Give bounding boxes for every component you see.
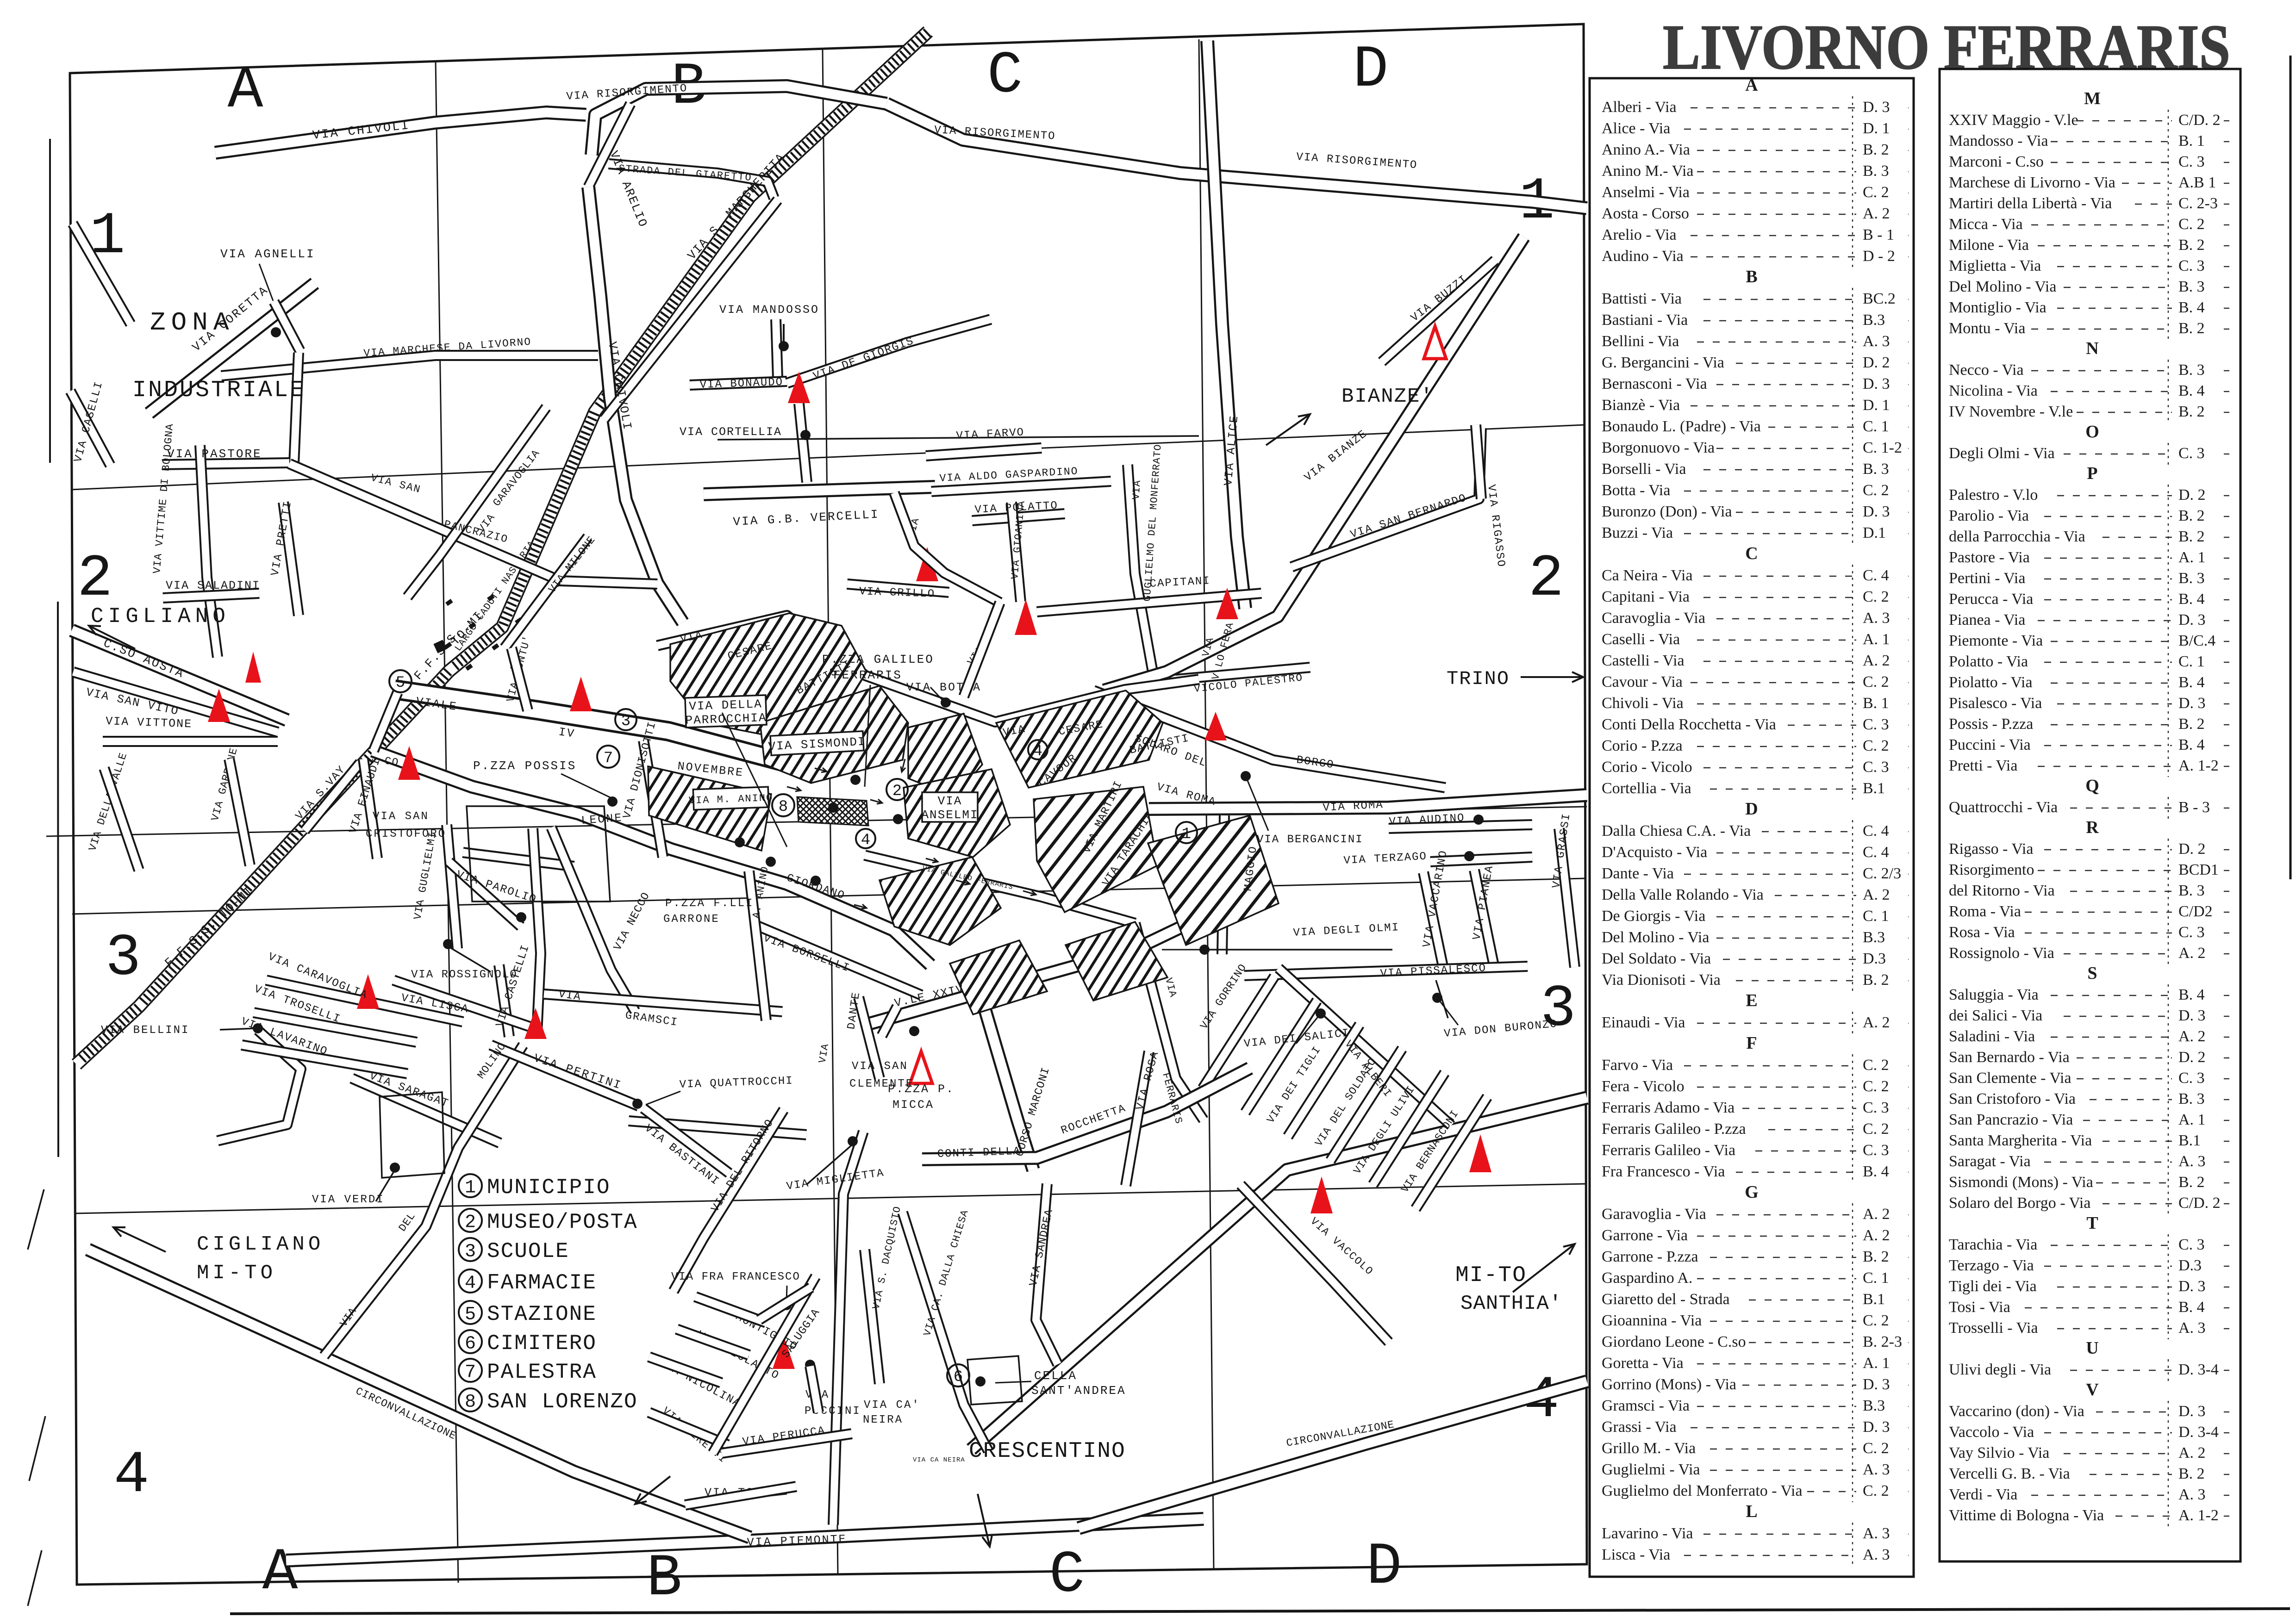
svg-text:Grassi - Via: Grassi - Via bbox=[1602, 1418, 1677, 1436]
svg-text:Del Molino - Via: Del Molino - Via bbox=[1602, 929, 1709, 946]
svg-text:D. 2: D. 2 bbox=[2178, 1049, 2206, 1066]
svg-text:A. 3: A. 3 bbox=[2178, 1486, 2206, 1503]
svg-text:Garavoglia - Via: Garavoglia - Via bbox=[1602, 1206, 1706, 1223]
svg-text:PARROCCHIA: PARROCCHIA bbox=[685, 711, 767, 728]
svg-text:VIA SAN: VIA SAN bbox=[373, 810, 429, 823]
svg-text:C. 2: C. 2 bbox=[1863, 1312, 1889, 1329]
svg-text:A. 2: A. 2 bbox=[1863, 1227, 1890, 1244]
svg-text:B. 2: B. 2 bbox=[1863, 141, 1889, 158]
svg-text:M: M bbox=[2084, 89, 2101, 108]
svg-text:D. 3: D. 3 bbox=[2178, 611, 2206, 628]
svg-text:Aosta - Corso: Aosta - Corso bbox=[1602, 205, 1689, 222]
svg-text:Chivoli - Via: Chivoli - Via bbox=[1602, 695, 1684, 712]
svg-text:Trosselli - Via: Trosselli - Via bbox=[1949, 1319, 2038, 1337]
svg-text:Solaro del Borgo - Via: Solaro del Borgo - Via bbox=[1949, 1194, 2090, 1212]
svg-text:C. 2: C. 2 bbox=[1863, 1482, 1889, 1499]
svg-text:Santa Margherita - Via: Santa Margherita - Via bbox=[1949, 1132, 2092, 1149]
svg-text:Grillo M. - Via: Grillo M. - Via bbox=[1602, 1440, 1696, 1457]
svg-text:IV Novembre - V.le: IV Novembre - V.le bbox=[1949, 403, 2073, 420]
svg-text:Dante - Via: Dante - Via bbox=[1602, 865, 1674, 882]
svg-text:B. 2: B. 2 bbox=[1863, 1248, 1889, 1265]
svg-text:D. 3-4: D. 3-4 bbox=[2178, 1361, 2219, 1378]
svg-text:D: D bbox=[1366, 1534, 1402, 1601]
svg-text:C. 2: C. 2 bbox=[1863, 673, 1889, 690]
svg-text:Lavarino - Via: Lavarino - Via bbox=[1602, 1525, 1693, 1542]
svg-text:C. 3: C. 3 bbox=[2178, 445, 2205, 462]
svg-text:B. 4: B. 4 bbox=[2178, 674, 2205, 691]
svg-text:B. 4: B. 4 bbox=[2178, 736, 2205, 753]
svg-text:MI-TO: MI-TO bbox=[197, 1262, 276, 1285]
svg-text:B. 2: B. 2 bbox=[2178, 1174, 2205, 1191]
svg-text:Terzago - Via: Terzago - Via bbox=[1949, 1257, 2034, 1274]
svg-text:B.1: B.1 bbox=[2178, 1132, 2201, 1149]
svg-text:B. 4: B. 4 bbox=[1863, 1163, 1889, 1180]
svg-text:BCD1: BCD1 bbox=[2178, 861, 2219, 878]
svg-text:A. 1: A. 1 bbox=[2178, 549, 2206, 566]
svg-text:Alberi - Via: Alberi - Via bbox=[1602, 99, 1677, 116]
svg-text:Fera - Vicolo: Fera - Vicolo bbox=[1602, 1078, 1685, 1095]
svg-text:Ferraris Adamo - Via: Ferraris Adamo - Via bbox=[1602, 1099, 1734, 1116]
svg-text:Corio - Vicolo: Corio - Vicolo bbox=[1602, 759, 1692, 776]
svg-text:Pisalesco - Via: Pisalesco - Via bbox=[1949, 695, 2042, 712]
svg-text:Vittime di Bologna - Via: Vittime di Bologna - Via bbox=[1949, 1507, 2104, 1524]
svg-text:D'Acquisto - Via: D'Acquisto - Via bbox=[1602, 844, 1707, 861]
svg-text:C. 3: C. 3 bbox=[2178, 257, 2205, 274]
svg-text:Giaretto del - Strada: Giaretto del - Strada bbox=[1602, 1291, 1730, 1308]
svg-text:Bianzè - Via: Bianzè - Via bbox=[1602, 397, 1680, 414]
svg-text:VIA: VIA bbox=[1130, 479, 1143, 500]
svg-text:Guglielmi - Via: Guglielmi - Via bbox=[1602, 1461, 1700, 1478]
svg-text:Pastore - Via: Pastore - Via bbox=[1949, 549, 2030, 566]
svg-text:A. 3: A. 3 bbox=[1863, 1461, 1890, 1478]
svg-text:V: V bbox=[2086, 1380, 2099, 1399]
svg-text:A: A bbox=[262, 1539, 298, 1606]
svg-text:B. 2: B. 2 bbox=[2178, 236, 2205, 254]
svg-text:Gorrino (Mons) - Via: Gorrino (Mons) - Via bbox=[1602, 1376, 1736, 1393]
svg-text:C: C bbox=[1745, 544, 1758, 563]
svg-text:B. 2: B. 2 bbox=[2178, 528, 2205, 545]
svg-text:A. 1: A. 1 bbox=[1863, 1355, 1890, 1372]
svg-text:Bellini - Via: Bellini - Via bbox=[1602, 333, 1679, 350]
svg-text:Sismondi (Mons) - Via: Sismondi (Mons) - Via bbox=[1949, 1174, 2093, 1191]
svg-text:C. 1-2: C. 1-2 bbox=[1863, 439, 1902, 456]
svg-text:Giordano Leone - C.so: Giordano Leone - C.so bbox=[1602, 1333, 1746, 1350]
svg-text:C. 1: C. 1 bbox=[1863, 908, 1889, 925]
svg-text:INDUSTRIALE: INDUSTRIALE bbox=[132, 377, 306, 404]
svg-text:E: E bbox=[1746, 991, 1757, 1010]
svg-text:Piemonte - Via: Piemonte - Via bbox=[1949, 632, 2043, 649]
svg-text:C. 3: C. 3 bbox=[2178, 1070, 2205, 1087]
svg-text:O: O bbox=[2085, 422, 2099, 442]
svg-text:VIA SAN: VIA SAN bbox=[852, 1060, 908, 1073]
svg-text:SAN LORENZO: SAN LORENZO bbox=[487, 1390, 638, 1414]
svg-text:C. 2-3: C. 2-3 bbox=[2178, 195, 2218, 212]
svg-text:Cavour - Via: Cavour - Via bbox=[1602, 673, 1683, 690]
svg-text:della Parrocchia - Via: della Parrocchia - Via bbox=[1949, 528, 2085, 545]
svg-text:Anselmi - Via: Anselmi - Via bbox=[1602, 184, 1690, 201]
svg-text:Alice - Via: Alice - Via bbox=[1602, 120, 1670, 137]
svg-text:Micca - Via: Micca - Via bbox=[1949, 216, 2023, 233]
svg-text:B. 4: B. 4 bbox=[2178, 382, 2205, 399]
svg-text:N: N bbox=[2086, 339, 2098, 358]
svg-text:C: C bbox=[987, 43, 1023, 110]
svg-text:D. 3: D. 3 bbox=[1863, 375, 1890, 392]
svg-text:D. 2: D. 2 bbox=[2178, 840, 2206, 858]
svg-text:del Ritorno - Via: del Ritorno - Via bbox=[1949, 882, 2055, 899]
svg-text:B: B bbox=[1746, 267, 1757, 286]
svg-text:A. 2: A. 2 bbox=[1863, 886, 1890, 903]
svg-text:B. 3: B. 3 bbox=[1863, 162, 1889, 180]
svg-text:VIA BELLINI: VIA BELLINI bbox=[101, 1024, 189, 1037]
svg-text:B. 2: B. 2 bbox=[1863, 971, 1889, 989]
svg-text:Capitani - Via: Capitani - Via bbox=[1602, 588, 1690, 605]
svg-text:C. 3: C. 3 bbox=[1863, 716, 1889, 733]
svg-text:SANTHIA': SANTHIA' bbox=[1460, 1292, 1562, 1315]
svg-text:B.3: B.3 bbox=[1863, 929, 1885, 946]
svg-text:Battisti - Via: Battisti - Via bbox=[1602, 290, 1682, 307]
svg-text:Fra Francesco - Via: Fra Francesco - Via bbox=[1602, 1163, 1725, 1180]
svg-text:Della Valle Rolando - Via: Della Valle Rolando - Via bbox=[1602, 886, 1764, 903]
svg-text:Buzzi - Via: Buzzi - Via bbox=[1602, 524, 1673, 541]
svg-text:CO: CO bbox=[384, 755, 400, 769]
svg-text:B. 4: B. 4 bbox=[2178, 986, 2205, 1003]
svg-text:CRESCENTINO: CRESCENTINO bbox=[969, 1439, 1126, 1464]
svg-text:Corio - P.zza: Corio - P.zza bbox=[1602, 737, 1683, 754]
svg-text:8: 8 bbox=[779, 798, 788, 816]
svg-text:Perucca - Via: Perucca - Via bbox=[1949, 591, 2033, 608]
svg-text:Degli Olmi - Via: Degli Olmi - Via bbox=[1949, 445, 2055, 462]
svg-text:CELLA: CELLA bbox=[1034, 1369, 1077, 1383]
svg-text:Vaccolo - Via: Vaccolo - Via bbox=[1949, 1424, 2034, 1441]
svg-text:VIA SALADINI: VIA SALADINI bbox=[166, 579, 260, 592]
svg-text:Caravoglia - Via: Caravoglia - Via bbox=[1602, 609, 1705, 627]
svg-text:VIA CA NEIRA: VIA CA NEIRA bbox=[913, 1456, 965, 1464]
svg-text:B. 1: B. 1 bbox=[1863, 695, 1889, 712]
svg-text:C. 3: C. 3 bbox=[1863, 1142, 1889, 1159]
svg-text:PALESTRA: PALESTRA bbox=[487, 1360, 597, 1384]
svg-text:SCUOLE: SCUOLE bbox=[487, 1239, 569, 1263]
svg-text:Pertini - Via: Pertini - Via bbox=[1949, 570, 2025, 587]
svg-text:GARRONE: GARRONE bbox=[663, 913, 720, 926]
svg-text:Farvo - Via: Farvo - Via bbox=[1602, 1057, 1673, 1074]
svg-text:C. 2: C. 2 bbox=[1863, 1078, 1889, 1095]
svg-text:B. 2: B. 2 bbox=[2178, 715, 2205, 733]
svg-text:2: 2 bbox=[892, 783, 902, 800]
svg-text:C. 2: C. 2 bbox=[2178, 216, 2205, 233]
svg-text:R: R bbox=[2086, 818, 2099, 837]
svg-text:D. 3: D. 3 bbox=[1863, 99, 1890, 116]
svg-text:A. 3: A. 3 bbox=[1863, 1546, 1890, 1563]
svg-text:P.ZZA GALILEO: P.ZZA GALILEO bbox=[822, 653, 934, 666]
svg-text:C/D. 2: C/D. 2 bbox=[2178, 1194, 2221, 1212]
svg-text:A. 2: A. 2 bbox=[2178, 945, 2206, 962]
svg-text:VIA CORTELLIA: VIA CORTELLIA bbox=[680, 425, 782, 439]
svg-text:C. 1: C. 1 bbox=[2178, 653, 2205, 670]
svg-text:C. 2: C. 2 bbox=[1863, 1057, 1889, 1074]
svg-text:XXIV Maggio - V.le: XXIV Maggio - V.le bbox=[1949, 112, 2078, 129]
svg-text:Vay Silvio - Via: Vay Silvio - Via bbox=[1949, 1444, 2049, 1461]
svg-text:6: 6 bbox=[954, 1368, 963, 1386]
svg-text:B. 3: B. 3 bbox=[2178, 278, 2205, 295]
svg-text:P.ZZA F.LLI: P.ZZA F.LLI bbox=[665, 897, 754, 910]
svg-text:A. 3: A. 3 bbox=[1863, 1525, 1890, 1542]
svg-text:Montu - Via: Montu - Via bbox=[1949, 320, 2025, 337]
svg-text:C. 4: C. 4 bbox=[1863, 822, 1889, 839]
svg-text:7: 7 bbox=[465, 1362, 476, 1383]
svg-text:Ulivi degli - Via: Ulivi degli - Via bbox=[1949, 1361, 2051, 1378]
svg-text:C. 4: C. 4 bbox=[1863, 567, 1889, 584]
svg-text:D. 3: D. 3 bbox=[2178, 1403, 2206, 1420]
svg-text:Nicolina - Via: Nicolina - Via bbox=[1949, 382, 2038, 399]
svg-text:MUNICIPIO: MUNICIPIO bbox=[487, 1175, 610, 1200]
svg-text:Ferraris Galileo - P.zza: Ferraris Galileo - P.zza bbox=[1602, 1120, 1746, 1138]
svg-text:Roma - Via: Roma - Via bbox=[1949, 903, 2021, 920]
svg-text:D - 2: D - 2 bbox=[1863, 248, 1895, 265]
svg-text:B.3: B.3 bbox=[1863, 1397, 1885, 1414]
svg-text:BC.2: BC.2 bbox=[1863, 290, 1896, 307]
svg-text:BIANZE': BIANZE' bbox=[1341, 385, 1434, 408]
svg-text:Conti Della Rocchetta - Via: Conti Della Rocchetta - Via bbox=[1602, 716, 1776, 733]
svg-text:B - 3: B - 3 bbox=[2178, 799, 2210, 816]
svg-text:B. 4: B. 4 bbox=[2178, 1299, 2205, 1316]
svg-text:C/D. 2: C/D. 2 bbox=[2178, 112, 2221, 129]
svg-text:Goretta - Via: Goretta - Via bbox=[1602, 1355, 1684, 1372]
svg-text:Bastiani - Via: Bastiani - Via bbox=[1602, 311, 1688, 329]
svg-text:B.3: B.3 bbox=[1863, 311, 1885, 329]
svg-text:B. 3: B. 3 bbox=[2178, 882, 2205, 899]
svg-text:Gaspardino A.: Gaspardino A. bbox=[1602, 1269, 1692, 1287]
svg-text:Tosi - Via: Tosi - Via bbox=[1949, 1299, 2010, 1316]
svg-text:Rossignolo - Via: Rossignolo - Via bbox=[1949, 945, 2054, 962]
svg-text:C. 2: C. 2 bbox=[1863, 482, 1889, 499]
svg-text:A: A bbox=[1745, 75, 1758, 95]
svg-text:Garrone - Via: Garrone - Via bbox=[1602, 1227, 1688, 1244]
svg-text:D. 1: D. 1 bbox=[1863, 120, 1890, 137]
svg-text:B.1: B.1 bbox=[1863, 780, 1885, 797]
svg-text:C. 1: C. 1 bbox=[1863, 1269, 1889, 1287]
svg-text:P.ZZA POSSIS: P.ZZA POSSIS bbox=[473, 759, 576, 773]
svg-text:C: C bbox=[1049, 1542, 1085, 1609]
svg-text:3: 3 bbox=[106, 925, 141, 992]
svg-text:D.3: D.3 bbox=[1863, 950, 1886, 967]
svg-text:Del Soldato - Via: Del Soldato - Via bbox=[1602, 950, 1711, 967]
svg-text:B. 4: B. 4 bbox=[2178, 591, 2205, 608]
svg-text:Marchese di Livorno - Via: Marchese di Livorno - Via bbox=[1949, 174, 2115, 191]
svg-text:A: A bbox=[228, 57, 263, 124]
svg-text:A. 1-2: A. 1-2 bbox=[2178, 757, 2219, 774]
svg-text:A. 2: A. 2 bbox=[2178, 1028, 2206, 1045]
svg-text:C. 3: C. 3 bbox=[2178, 1236, 2205, 1253]
svg-text:2: 2 bbox=[1529, 546, 1564, 613]
svg-text:C. 2/3: C. 2/3 bbox=[1863, 865, 1901, 882]
svg-text:C. 3: C. 3 bbox=[2178, 153, 2205, 170]
svg-text:C. 2: C. 2 bbox=[1863, 737, 1889, 754]
svg-text:Anino M.- Via: Anino M.- Via bbox=[1602, 162, 1694, 180]
svg-text:Vercelli G. B. - Via: Vercelli G. B. - Via bbox=[1949, 1465, 2070, 1482]
svg-text:A. 2: A. 2 bbox=[1863, 652, 1890, 669]
svg-text:Saladini - Via: Saladini - Via bbox=[1949, 1028, 2035, 1045]
svg-text:VIA AGNELLI: VIA AGNELLI bbox=[220, 247, 315, 261]
svg-text:De Giorgis - Via: De Giorgis - Via bbox=[1602, 908, 1705, 925]
svg-text:A. 2: A. 2 bbox=[1863, 1206, 1890, 1223]
svg-text:B. 2: B. 2 bbox=[2178, 403, 2205, 420]
svg-text:6: 6 bbox=[465, 1333, 476, 1354]
svg-text:VIA GRILLO: VIA GRILLO bbox=[859, 585, 936, 601]
svg-text:A. 3: A. 3 bbox=[1863, 333, 1890, 350]
svg-text:S: S bbox=[2087, 964, 2097, 983]
svg-text:Bernasconi - Via: Bernasconi - Via bbox=[1602, 375, 1707, 392]
svg-text:Quattrocchi - Via: Quattrocchi - Via bbox=[1949, 799, 2058, 816]
svg-text:FERRARIS: FERRARIS bbox=[833, 668, 902, 682]
svg-text:U: U bbox=[2086, 1338, 2098, 1358]
svg-text:Del Molino - Via: Del Molino - Via bbox=[1949, 278, 2056, 295]
svg-text:Cortellia - Via: Cortellia - Via bbox=[1602, 780, 1691, 797]
svg-text:C. 4: C. 4 bbox=[1863, 844, 1889, 861]
svg-text:A. 2: A. 2 bbox=[1863, 205, 1890, 222]
svg-text:B. 2: B. 2 bbox=[2178, 1465, 2205, 1482]
svg-text:D. 3: D. 3 bbox=[1863, 1376, 1890, 1393]
svg-text:4: 4 bbox=[114, 1442, 150, 1509]
svg-text:Pianea - Via: Pianea - Via bbox=[1949, 611, 2025, 628]
svg-text:Einaudi - Via: Einaudi - Via bbox=[1602, 1014, 1685, 1031]
svg-text:Rosa - Via: Rosa - Via bbox=[1949, 924, 2015, 941]
svg-text:IV: IV bbox=[558, 725, 576, 741]
svg-text:Castelli - Via: Castelli - Via bbox=[1602, 652, 1685, 669]
svg-text:Borselli - Via: Borselli - Via bbox=[1602, 460, 1686, 478]
svg-text:4: 4 bbox=[861, 832, 870, 849]
svg-text:Saragat - Via: Saragat - Via bbox=[1949, 1153, 2031, 1170]
svg-text:VIA ROSSIGNOLO: VIA ROSSIGNOLO bbox=[411, 969, 518, 981]
svg-text:B - 1: B - 1 bbox=[1863, 226, 1894, 243]
svg-text:TRINO: TRINO bbox=[1447, 668, 1510, 690]
svg-text:Piolatto - Via: Piolatto - Via bbox=[1949, 674, 2033, 691]
svg-text:Ferraris Galileo - Via: Ferraris Galileo - Via bbox=[1602, 1142, 1735, 1159]
svg-text:D. 3-4: D. 3-4 bbox=[2178, 1424, 2219, 1441]
svg-text:VIA: VIA bbox=[938, 794, 962, 808]
svg-text:ZONA: ZONA bbox=[150, 308, 234, 337]
svg-text:Milone - Via: Milone - Via bbox=[1949, 236, 2029, 254]
svg-text:D: D bbox=[1745, 799, 1758, 819]
svg-text:3: 3 bbox=[465, 1241, 476, 1262]
svg-text:Montiglio - Via: Montiglio - Via bbox=[1949, 299, 2046, 316]
svg-text:CIMITERO: CIMITERO bbox=[487, 1331, 597, 1356]
svg-text:B. 2: B. 2 bbox=[2178, 320, 2205, 337]
svg-text:CIGLIANO: CIGLIANO bbox=[197, 1233, 324, 1256]
svg-text:Arelio - Via: Arelio - Via bbox=[1602, 226, 1677, 243]
svg-text:D. 3: D. 3 bbox=[2178, 1278, 2206, 1295]
svg-text:Puccini - Via: Puccini - Via bbox=[1949, 736, 2031, 753]
svg-text:SANT'ANDREA: SANT'ANDREA bbox=[1031, 1384, 1126, 1398]
svg-text:A. 2: A. 2 bbox=[1863, 1014, 1890, 1031]
svg-text:A. 2: A. 2 bbox=[2178, 1444, 2206, 1461]
svg-text:B.1: B.1 bbox=[1863, 1291, 1885, 1308]
svg-text:3: 3 bbox=[621, 713, 630, 730]
svg-text:Marconi - C.so: Marconi - C.so bbox=[1949, 153, 2044, 170]
svg-text:Ca Neira - Via: Ca Neira - Via bbox=[1602, 567, 1693, 584]
svg-text:1: 1 bbox=[465, 1177, 476, 1198]
svg-text:San Cristoforo - Via: San Cristoforo - Via bbox=[1949, 1090, 2076, 1107]
svg-text:Mandosso - Via: Mandosso - Via bbox=[1949, 132, 2048, 149]
svg-text:8: 8 bbox=[465, 1392, 476, 1412]
svg-text:Dalla Chiesa C.A. - Via: Dalla Chiesa C.A. - Via bbox=[1602, 822, 1751, 839]
svg-text:Borgonuovo - Via: Borgonuovo - Via bbox=[1602, 439, 1715, 456]
svg-text:Bonaudo L. (Padre) - Via: Bonaudo L. (Padre) - Via bbox=[1602, 418, 1761, 435]
svg-text:Gioannina - Via: Gioannina - Via bbox=[1602, 1312, 1702, 1329]
svg-text:A. 3: A. 3 bbox=[2178, 1153, 2206, 1170]
svg-text:C. 3: C. 3 bbox=[2178, 924, 2205, 941]
svg-text:San Bernardo - Via: San Bernardo - Via bbox=[1949, 1049, 2070, 1066]
svg-text:B. 3: B. 3 bbox=[2178, 570, 2205, 587]
svg-text:Caselli - Via: Caselli - Via bbox=[1602, 631, 1680, 648]
svg-text:B. 3: B. 3 bbox=[2178, 361, 2205, 379]
svg-text:D: D bbox=[1353, 37, 1389, 104]
svg-text:Possis - P.zza: Possis - P.zza bbox=[1949, 715, 2033, 733]
svg-text:VIA MANDOSSO: VIA MANDOSSO bbox=[719, 303, 819, 317]
svg-text:Garrone - P.zza: Garrone - P.zza bbox=[1602, 1248, 1698, 1265]
svg-text:VIA VERDI: VIA VERDI bbox=[312, 1194, 385, 1206]
svg-text:FARMACIE: FARMACIE bbox=[487, 1271, 597, 1295]
svg-text:Vaccarino (don) - Via: Vaccarino (don) - Via bbox=[1949, 1403, 2084, 1420]
svg-text:Pretti - Via: Pretti - Via bbox=[1949, 757, 2017, 774]
svg-text:5: 5 bbox=[465, 1304, 476, 1325]
svg-text:P.ZZA P.: P.ZZA P. bbox=[888, 1082, 955, 1096]
svg-text:MICCA: MICCA bbox=[892, 1098, 934, 1112]
svg-text:A.B 1: A.B 1 bbox=[2178, 174, 2216, 191]
svg-text:D. 1: D. 1 bbox=[1863, 397, 1890, 414]
svg-text:7: 7 bbox=[604, 750, 613, 767]
svg-text:Via Dionisoti - Via: Via Dionisoti - Via bbox=[1602, 971, 1721, 989]
svg-text:1: 1 bbox=[1182, 826, 1191, 843]
svg-text:ANSELMI: ANSELMI bbox=[921, 808, 978, 822]
svg-text:A. 1: A. 1 bbox=[2178, 1111, 2206, 1128]
svg-text:Gramsci - Via: Gramsci - Via bbox=[1602, 1397, 1690, 1414]
svg-text:Tigli dei - Via: Tigli dei - Via bbox=[1949, 1278, 2037, 1295]
svg-text:A. 1: A. 1 bbox=[1863, 631, 1890, 648]
svg-text:D. 2: D. 2 bbox=[2178, 486, 2206, 504]
svg-text:4: 4 bbox=[465, 1273, 476, 1293]
svg-text:C. 2: C. 2 bbox=[1863, 1440, 1889, 1457]
svg-text:P: P bbox=[2087, 464, 2097, 483]
svg-text:B. 2-3: B. 2-3 bbox=[1863, 1333, 1902, 1350]
svg-text:B. 3: B. 3 bbox=[1863, 460, 1889, 478]
svg-text:3: 3 bbox=[1541, 976, 1576, 1043]
svg-text:VIA CA': VIA CA' bbox=[864, 1399, 920, 1412]
svg-text:Miglietta - Via: Miglietta - Via bbox=[1949, 257, 2041, 274]
svg-text:CIGLIANO: CIGLIANO bbox=[91, 604, 230, 628]
svg-text:D. 3: D. 3 bbox=[2178, 695, 2206, 712]
svg-text:Necco - Via: Necco - Via bbox=[1949, 361, 2024, 379]
svg-text:B: B bbox=[647, 1545, 682, 1612]
svg-text:D. 3: D. 3 bbox=[1863, 1418, 1890, 1436]
svg-text:Lisca - Via: Lisca - Via bbox=[1602, 1546, 1670, 1563]
svg-text:G: G bbox=[1745, 1182, 1759, 1202]
svg-text:Saluggia - Via: Saluggia - Via bbox=[1949, 986, 2039, 1003]
svg-text:C. 2: C. 2 bbox=[1863, 184, 1889, 201]
svg-text:Guglielmo del Monferrato - Via: Guglielmo del Monferrato - Via bbox=[1602, 1482, 1803, 1499]
svg-text:T: T bbox=[2086, 1213, 2098, 1233]
svg-text:B. 3: B. 3 bbox=[2178, 1090, 2205, 1107]
svg-text:C. 3: C. 3 bbox=[1863, 1099, 1889, 1116]
svg-text:D.3: D.3 bbox=[2178, 1257, 2202, 1274]
svg-text:Parolio - Via: Parolio - Via bbox=[1949, 507, 2029, 524]
svg-text:Risorgimento: Risorgimento bbox=[1949, 861, 2034, 878]
svg-text:San Clemente - Via: San Clemente - Via bbox=[1949, 1070, 2071, 1087]
svg-text:San Pancrazio - Via: San Pancrazio - Via bbox=[1949, 1111, 2073, 1128]
svg-text:B. 4: B. 4 bbox=[2178, 299, 2205, 316]
svg-text:Q: Q bbox=[2085, 776, 2099, 796]
svg-text:C. 2: C. 2 bbox=[1863, 588, 1889, 605]
svg-text:2: 2 bbox=[465, 1212, 476, 1233]
